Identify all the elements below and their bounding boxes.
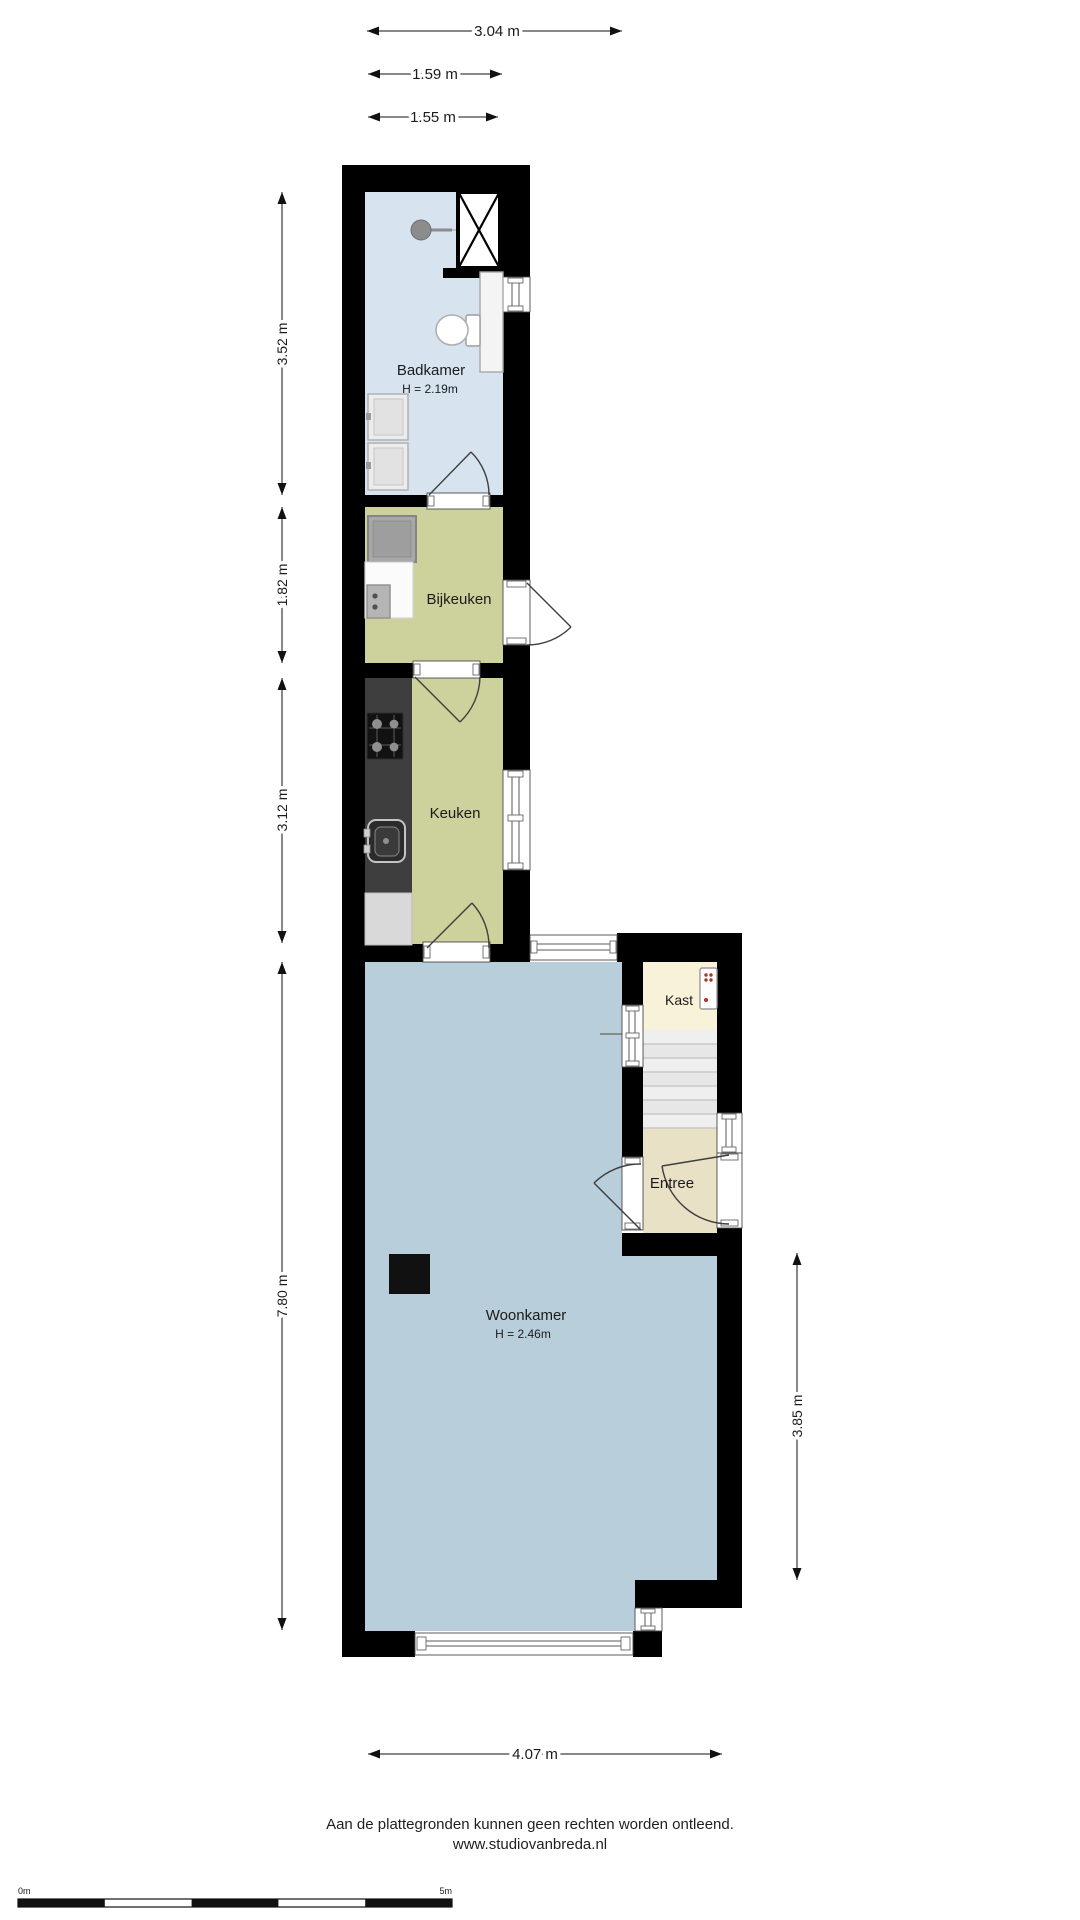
svg-text:7.80 m: 7.80 m [274, 1275, 290, 1318]
keuken-window [503, 770, 530, 870]
kitchen-sink-icon [364, 820, 405, 862]
keuken-label: Keuken [430, 805, 481, 822]
wall-right-extension-upper [717, 962, 742, 1113]
wall-keuken-woonkamer-left [342, 944, 423, 962]
svg-text:1.55 m: 1.55 m [410, 109, 456, 126]
bijkeuken-label: Bijkeuken [426, 591, 491, 608]
front-door-opening [717, 1153, 742, 1228]
boiler-icon [700, 968, 717, 1009]
wall-badkamer-bijkeuken-left [342, 495, 427, 507]
dimension-bottom-1: 4.07 m [368, 1746, 722, 1763]
bijkeuken-backdoor-arc [527, 583, 571, 645]
entree-woonkamer-door-opening [622, 1157, 643, 1230]
wall-right-badkamer-bottom [503, 312, 530, 580]
woonkamer-label: Woonkamer [486, 1307, 567, 1324]
wall-bottom-right-block [633, 1631, 662, 1657]
bijkeuken-keuken-door-opening [413, 661, 480, 678]
wall-keuken-woonkamer-right [490, 944, 530, 962]
toilet-icon [436, 315, 480, 346]
dimension-right-1: 3.85 m [789, 1253, 805, 1580]
stove-icon [367, 713, 403, 759]
footer: Aan de plattegronden kunnen geen rechten… [326, 1816, 734, 1853]
dimension-top-3: 1.55 m [368, 109, 498, 126]
dimension-top-1: 3.04 m [367, 23, 622, 40]
badkamer-door-opening [427, 493, 490, 509]
keuken-woonkamer-door-opening [423, 942, 490, 962]
wall-kastblock-left-upper [622, 962, 643, 1005]
badkamer-window [503, 277, 530, 312]
svg-text:4.07 m: 4.07 m [512, 1746, 558, 1763]
wall-extension-top [617, 933, 742, 962]
entree-label: Entree [650, 1175, 694, 1192]
wall-notch [635, 1580, 742, 1608]
stairs-window [622, 1005, 643, 1067]
extension-top-window [530, 935, 617, 960]
footer-website: www.studiovanbreda.nl [452, 1836, 607, 1853]
wall-bijkeuken-keuken-left [342, 663, 413, 678]
wall-right-extension-lower [717, 1228, 742, 1580]
svg-text:1.82 m: 1.82 m [274, 564, 290, 607]
vanity-counter-icon [480, 272, 503, 372]
svg-text:3.85 m: 3.85 m [789, 1395, 805, 1438]
utility-counter-icon [365, 562, 413, 618]
fridge-icon [365, 893, 412, 945]
scale-bar: 0m 5m [18, 1886, 452, 1907]
front-sidelight-window [717, 1113, 742, 1153]
scale-bar-segment [365, 1899, 452, 1907]
dimension-top-2: 1.59 m [368, 66, 502, 83]
woonkamer-bottom-window [415, 1633, 633, 1655]
column-icon [389, 1254, 430, 1294]
svg-text:3.04 m: 3.04 m [474, 23, 520, 40]
wall-corner-stub [503, 933, 530, 944]
washing-machine-icon [368, 516, 416, 562]
scale-start-label: 0m [18, 1886, 31, 1896]
woonkamer-height-label: H = 2.46m [495, 1327, 551, 1341]
floor-plan-page: { "colors": { "wall": "#000000", "badkam… [0, 0, 1080, 1920]
footer-disclaimer: Aan de plattegronden kunnen geen rechten… [326, 1816, 734, 1833]
stair-tread [643, 1044, 717, 1058]
ventilation-shaft-icon [458, 192, 500, 268]
svg-text:3.12 m: 3.12 m [274, 789, 290, 832]
dimension-left-4: 7.80 m [274, 962, 290, 1630]
wall-bottom-left [342, 1631, 415, 1657]
scale-bar-segment [192, 1899, 279, 1907]
svg-text:3.52 m: 3.52 m [274, 323, 290, 366]
floors [365, 192, 717, 1631]
dimension-left-3: 3.12 m [274, 678, 290, 943]
wall-right-badkamer-top [498, 165, 530, 277]
svg-text:1.59 m: 1.59 m [412, 66, 458, 83]
wall-badkamer-bijkeuken-right [490, 495, 530, 507]
wall-kastblock-left-mid [622, 1067, 643, 1157]
utility-sink-icon [367, 585, 390, 618]
scale-end-label: 5m [439, 1886, 452, 1896]
stair-tread [643, 1100, 717, 1114]
floor-plan-canvas: Badkamer H = 2.19m Bijkeuken Keuken Kast… [0, 0, 1080, 1920]
scale-bar-segment [18, 1899, 105, 1907]
wall-left [342, 165, 365, 1657]
dimension-left-1: 3.52 m [274, 192, 290, 495]
dimension-left-2: 1.82 m [274, 507, 290, 663]
kast-label: Kast [665, 992, 693, 1008]
badkamer-label: Badkamer [397, 362, 465, 379]
stair-tread [643, 1072, 717, 1086]
bijkeuken-backdoor-opening [503, 580, 530, 645]
notch-window [635, 1608, 662, 1631]
badkamer-height-label: H = 2.19m [402, 382, 458, 396]
wall-bijkeuken-keuken-right [480, 663, 530, 678]
